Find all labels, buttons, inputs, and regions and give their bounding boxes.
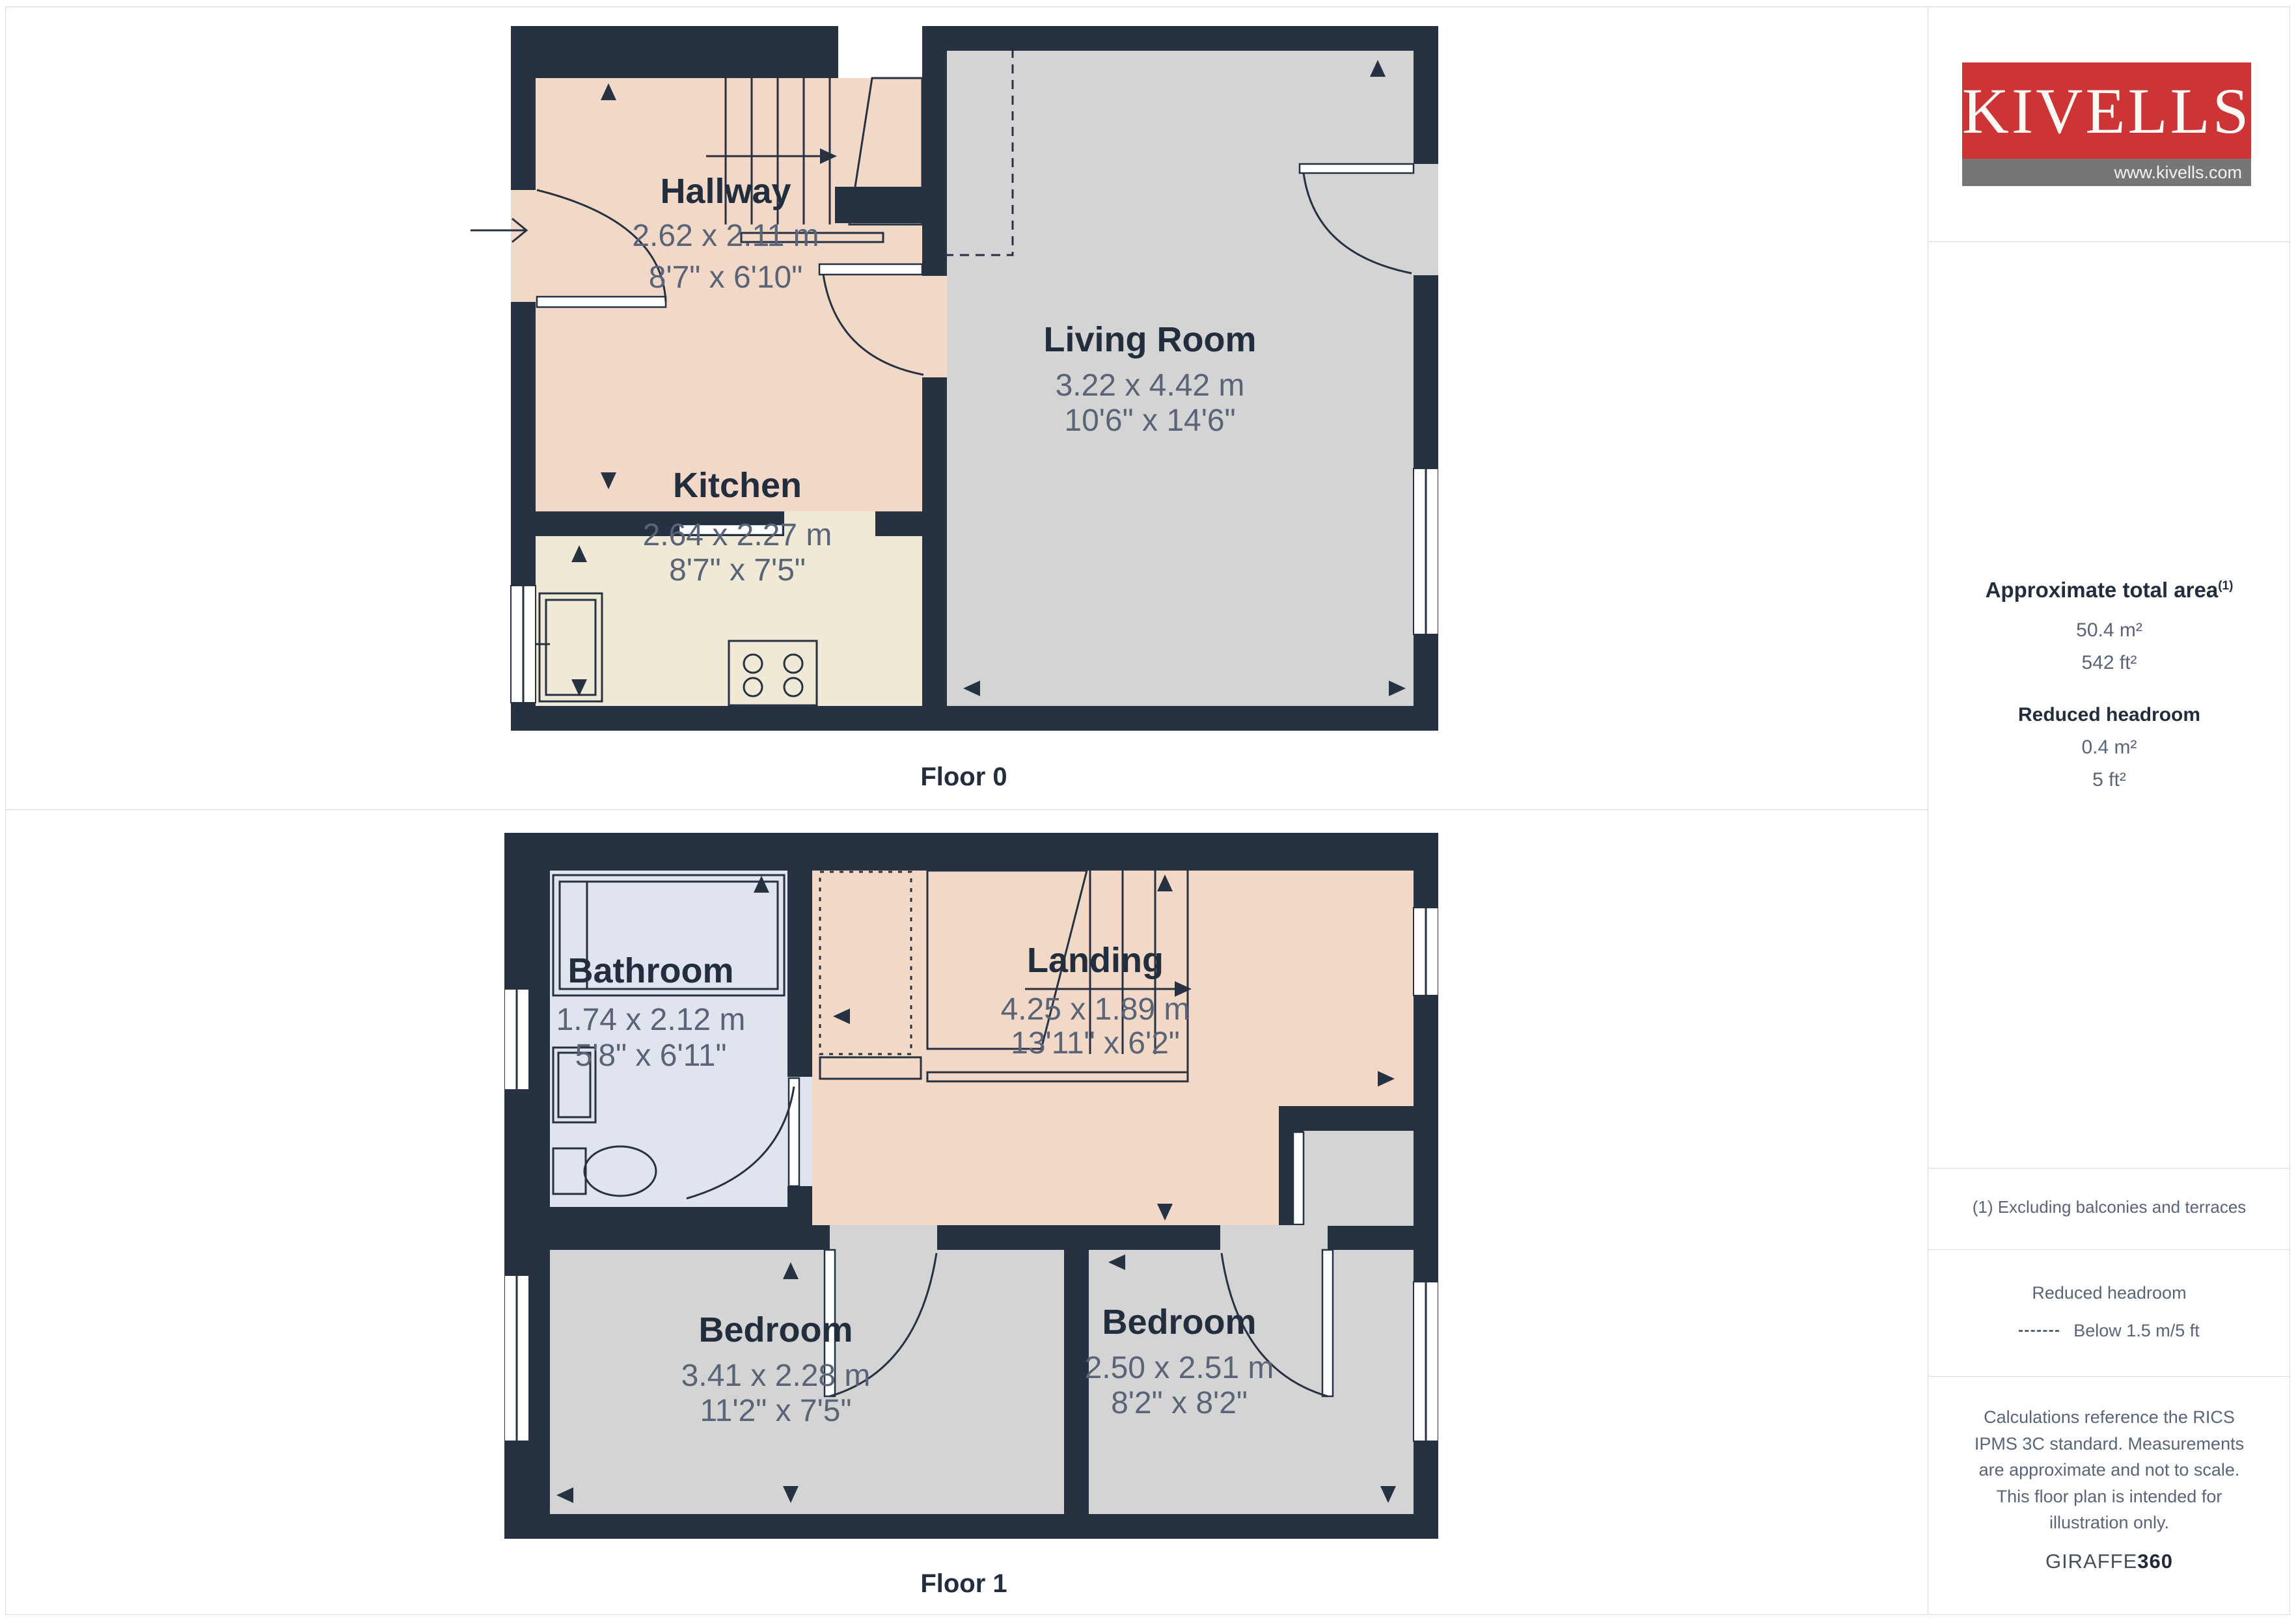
- room-label-kitchen: Kitchen: [673, 466, 802, 505]
- room-dim-metric: 4.25 x 1.89 m: [1001, 992, 1190, 1027]
- room-label-bedroom-2: Bedroom: [1102, 1303, 1256, 1342]
- cupboard: [1279, 1106, 1414, 1231]
- total-area-imperial: 542 ft²: [1928, 652, 2290, 674]
- footnote-marker: (1): [2218, 579, 2233, 593]
- dashed-line-icon: [2019, 1330, 2059, 1332]
- bathroom-window: [504, 989, 529, 1090]
- room-dim-imperial: 8'7" x 7'5": [669, 553, 806, 588]
- sidebar-section-divider: [1928, 1249, 2290, 1250]
- room-label-landing: Landing: [1027, 941, 1164, 980]
- total-area-heading-text: Approximate total area: [1986, 578, 2219, 602]
- kivells-logo: KIVELLS: [1962, 62, 2251, 159]
- room-dim-imperial: 13'11" x 6'2": [1011, 1026, 1180, 1061]
- room-dim-imperial: 5'8" x 6'11": [575, 1038, 727, 1073]
- total-area-metric: 50.4 m²: [1928, 619, 2290, 642]
- room-dim-metric: 1.74 x 2.12 m: [556, 1003, 746, 1037]
- generator-name: GIRAFFE: [2045, 1550, 2137, 1573]
- floor-1-plan: Bathroom 1.74 x 2.12 m 5'8" x 6'11" Land…: [504, 833, 1438, 1539]
- room-dim-imperial: 10'6" x 14'6": [1064, 403, 1235, 438]
- room-dim-metric: 2.62 x 2.11 m: [632, 219, 819, 253]
- room-dim-metric: 3.22 x 4.42 m: [1056, 368, 1245, 403]
- logo-website: www.kivells.com: [1962, 159, 2251, 186]
- landing-window: [1414, 908, 1438, 995]
- reduced-headroom-heading: Reduced headroom: [1928, 704, 2290, 726]
- kitchen-window: [511, 586, 536, 703]
- generator-brand: GIRAFFE360: [1928, 1550, 2290, 1573]
- room-label-living-room: Living Room: [1044, 320, 1257, 359]
- room-dim-imperial: 8'7" x 6'10": [649, 260, 803, 295]
- living-room-window: [1414, 468, 1438, 634]
- floor-0-label: Floor 0: [0, 763, 1928, 792]
- room-label-hallway: Hallway: [660, 172, 791, 211]
- floor-0-plan: Hallway 2.62 x 2.11 m 8'7" x 6'10" Kitch…: [462, 26, 1438, 731]
- room-dim-imperial: 8'2" x 8'2": [1111, 1386, 1248, 1420]
- logo-brand-text: KIVELLS: [1962, 74, 2252, 148]
- floor-divider: [6, 809, 1928, 810]
- legend-row: Below 1.5 m/5 ft: [1928, 1321, 2290, 1341]
- room-dim-imperial: 11'2" x 7'5": [700, 1394, 852, 1428]
- sidebar-section-divider: [1928, 1168, 2290, 1169]
- generator-suffix: 360: [2137, 1550, 2173, 1573]
- room-label-bathroom: Bathroom: [568, 951, 734, 990]
- room-dim-metric: 3.41 x 2.28 m: [681, 1359, 871, 1393]
- legend-heading: Reduced headroom: [1928, 1283, 2290, 1303]
- sidebar-section-divider: [1928, 241, 2290, 242]
- room-label-bedroom-1: Bedroom: [698, 1310, 853, 1349]
- disclaimer-text: Calculations reference the RICS IPMS 3C …: [1966, 1404, 2252, 1536]
- floorplan-sheet: Hallway 2.62 x 2.11 m 8'7" x 6'10" Kitch…: [0, 0, 2296, 1624]
- bedroom-1-window: [504, 1275, 529, 1441]
- info-sidebar: KIVELLS www.kivells.com Approximate tota…: [1928, 7, 2290, 1614]
- room-dim-metric: 2.64 x 2.27 m: [643, 518, 832, 552]
- bedroom-2-window: [1414, 1282, 1438, 1441]
- floor-1-label: Floor 1: [0, 1569, 1928, 1599]
- logo-website-text: www.kivells.com: [2114, 163, 2242, 183]
- sidebar-section-divider: [1928, 1376, 2290, 1377]
- reduced-headroom-metric: 0.4 m²: [1928, 737, 2290, 759]
- reduced-headroom-imperial: 5 ft²: [1928, 769, 2290, 791]
- room-dim-metric: 2.50 x 2.51 m: [1085, 1351, 1274, 1385]
- area-footnote: (1) Excluding balconies and terraces: [1928, 1197, 2290, 1217]
- floor0-walls: [511, 26, 1438, 731]
- legend-label: Below 1.5 m/5 ft: [2073, 1321, 2200, 1341]
- total-area-heading: Approximate total area(1): [1928, 578, 2290, 602]
- hallway-floor: [536, 78, 922, 511]
